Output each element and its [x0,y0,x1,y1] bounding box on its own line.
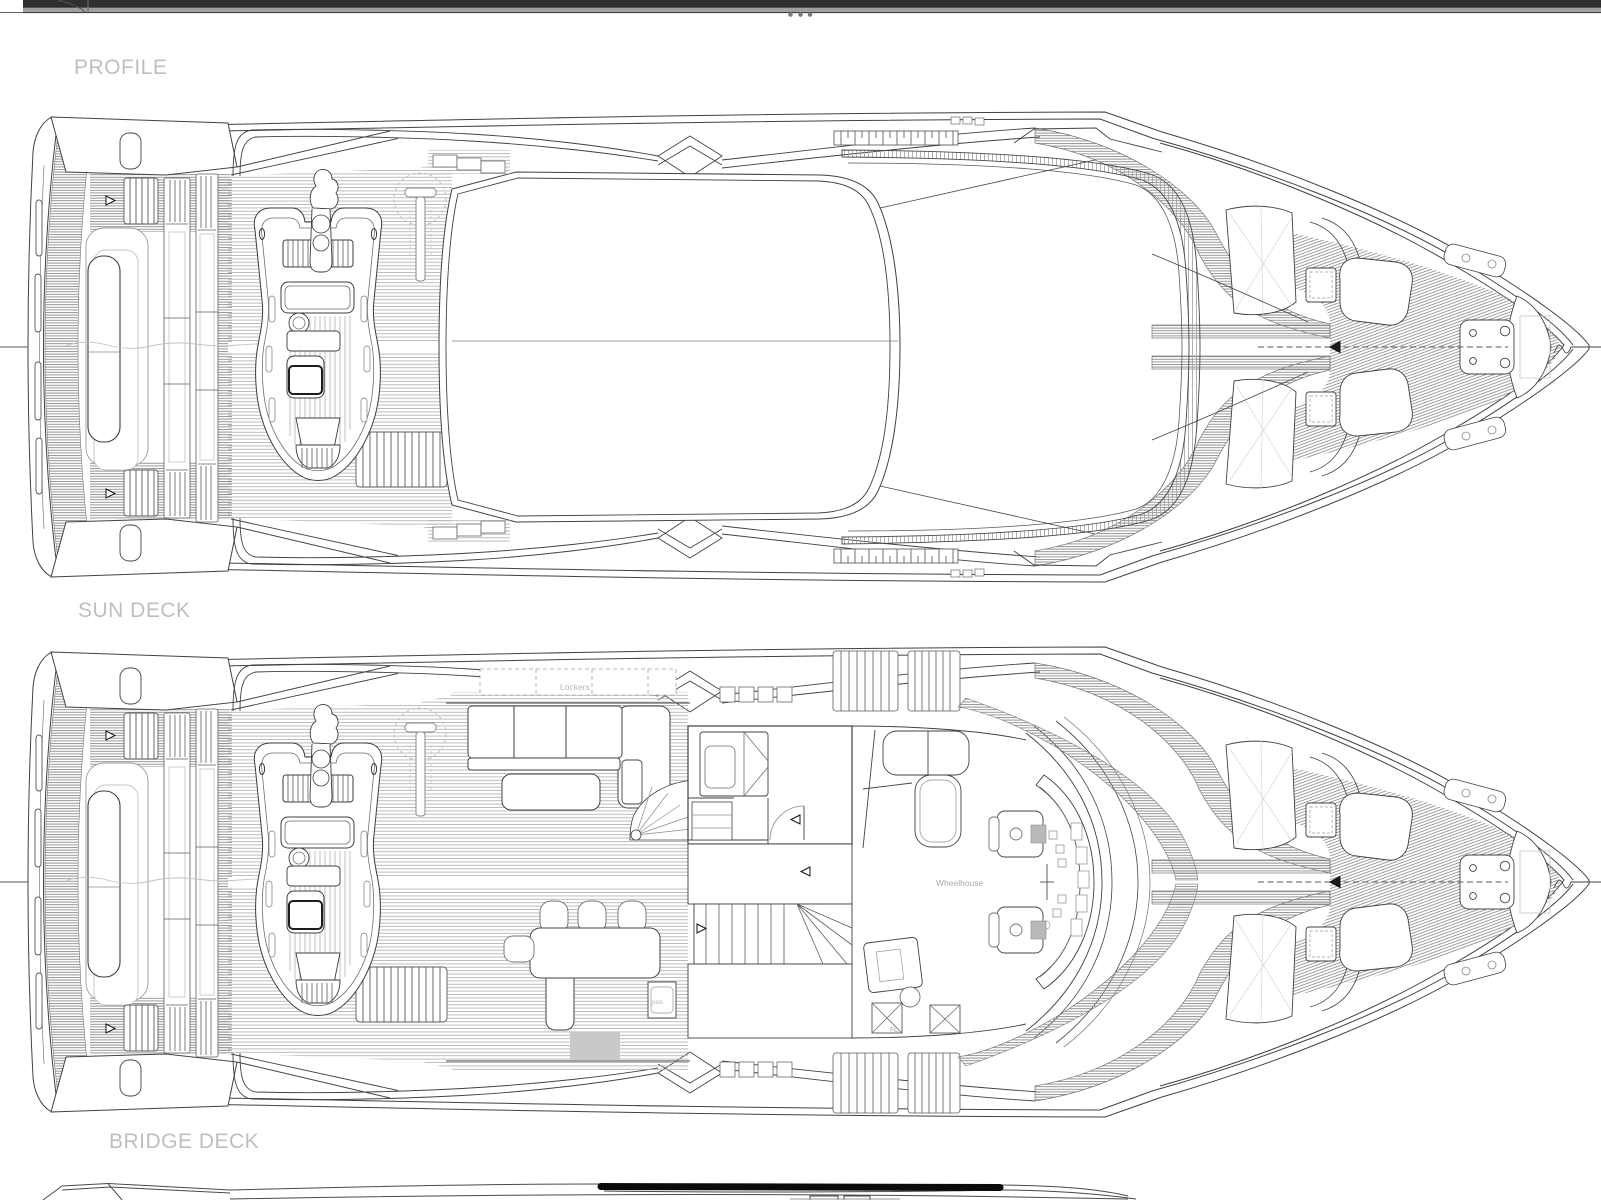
svg-text:BRIDGE DECK: BRIDGE DECK [109,1130,259,1153]
svg-text:Wheelhouse: Wheelhouse [936,878,984,888]
svg-text:Lockers: Lockers [560,682,590,692]
svg-text:FC: FC [890,1027,899,1034]
svg-text:PROFILE: PROFILE [74,56,167,79]
svg-text:SUN DECK: SUN DECK [78,599,191,622]
svg-text:(peis: (peis [650,1000,663,1006]
